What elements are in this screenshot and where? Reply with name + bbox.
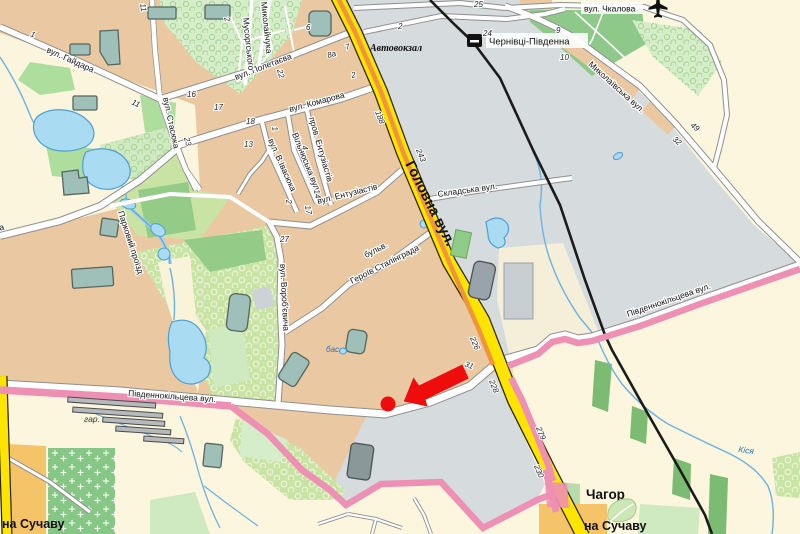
- svg-text:10: 10: [560, 53, 569, 62]
- svg-text:11: 11: [138, 3, 148, 13]
- svg-text:на Сучаву: на Сучаву: [2, 517, 65, 531]
- svg-text:Чагор: Чагор: [586, 487, 625, 502]
- svg-text:27: 27: [279, 235, 289, 244]
- svg-text:гар.: гар.: [84, 414, 100, 424]
- svg-text:бас.: бас.: [326, 345, 341, 354]
- svg-text:Автовокзал: Автовокзал: [369, 43, 422, 54]
- svg-text:25: 25: [473, 0, 483, 9]
- svg-text:18: 18: [246, 117, 255, 126]
- svg-text:16: 16: [187, 90, 196, 99]
- svg-text:24: 24: [482, 29, 492, 38]
- svg-text:вул. Чкалова: вул. Чкалова: [584, 4, 636, 14]
- svg-text:6: 6: [306, 23, 311, 32]
- svg-text:2: 2: [397, 22, 403, 31]
- svg-text:13: 13: [244, 140, 253, 149]
- svg-text:17: 17: [214, 103, 223, 112]
- svg-text:Чернівці-Південна: Чернівці-Південна: [489, 37, 570, 48]
- svg-text:9: 9: [556, 26, 561, 35]
